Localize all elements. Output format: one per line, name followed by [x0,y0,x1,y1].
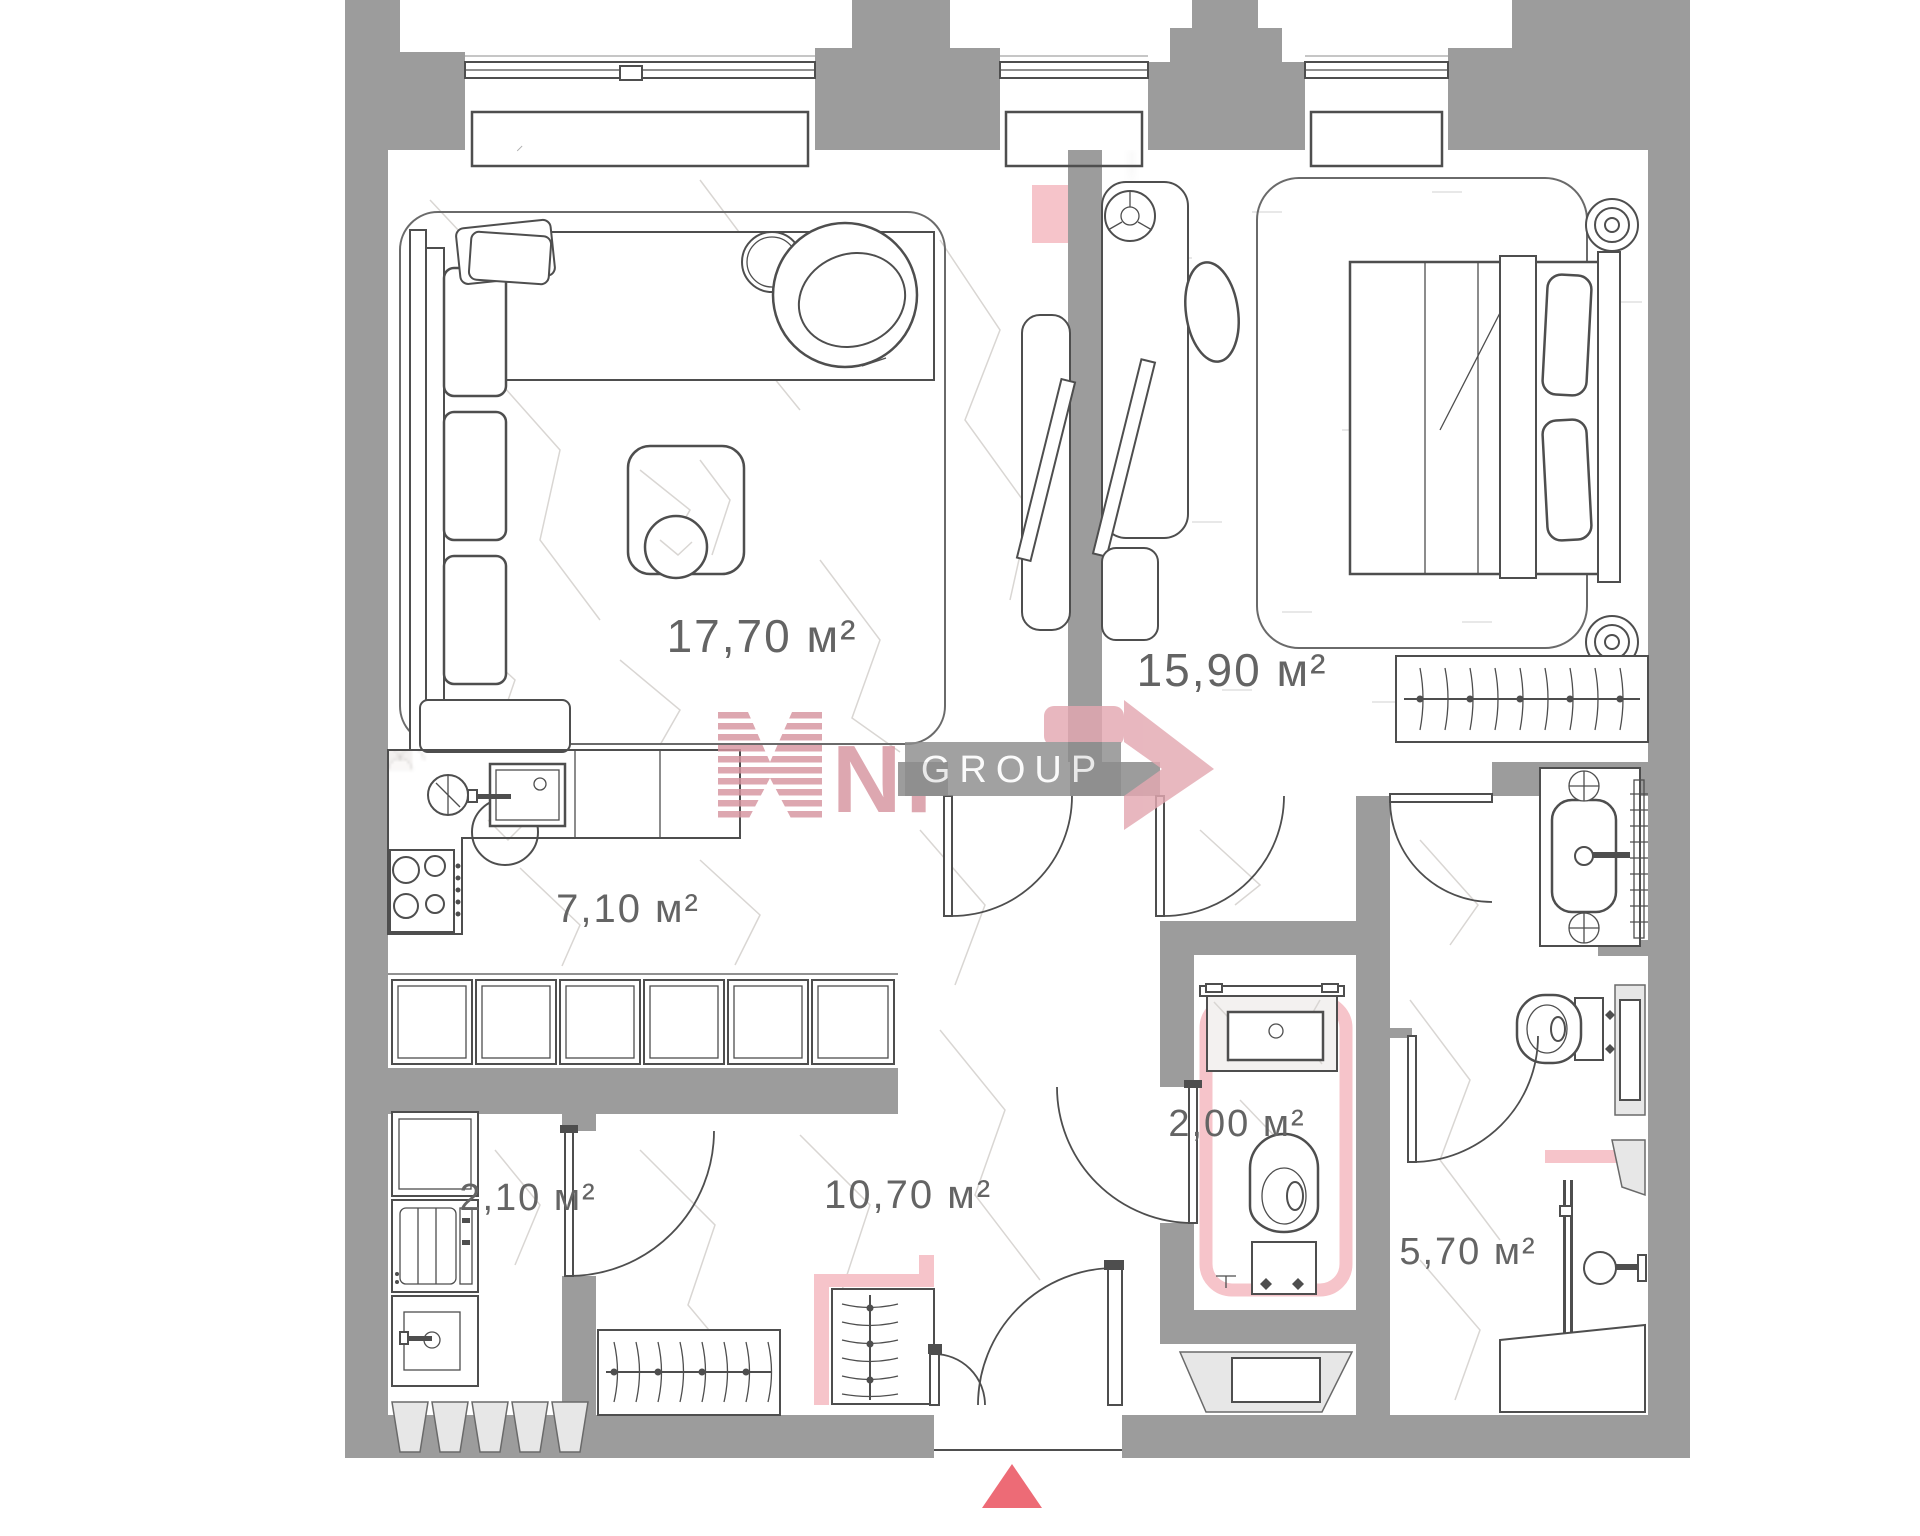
room-label-hallway: 10,70 м² [824,1173,992,1217]
room-label-bedroom: 15,90 м² [1137,644,1328,696]
shower [1560,1180,1646,1345]
window-bedroom-1 [1000,56,1148,166]
door-bath-inner [1408,1036,1538,1162]
window-living [465,56,815,166]
wall-wc-bottom [1160,1310,1390,1344]
faucet [468,790,477,802]
wall-utility-bottom-stub [562,1276,596,1415]
watermark-ribbon [1044,706,1124,746]
room-label-wc: 2,00 м² [1168,1103,1305,1145]
watermark-group: GROUP [921,749,1105,791]
room-label-bathroom: 5,70 м² [1399,1231,1536,1273]
headboard [1598,252,1620,582]
shower-bench [1500,1325,1645,1412]
highlighted-closet [832,1289,934,1404]
bath-vanity [1540,768,1648,946]
shoe-rack [392,1402,588,1452]
wall-wc-left-top [1160,955,1194,1087]
bath-toilet [1517,995,1615,1063]
wall-under-kitchen [388,1068,898,1114]
floorplan-page: 17,70 м² 15,90 м² 7,10 м² 10,70 м² 2,10 … [0,0,1920,1536]
stove [390,850,461,932]
wall-left [345,150,388,1458]
window-bedroom-2 [1305,56,1448,166]
wall-right [1648,150,1690,1458]
sofa-pillow [468,231,551,284]
side-stool [645,516,707,578]
sofa-cushion [444,268,506,396]
door-wc [1057,1080,1202,1223]
bath-tall-cabinet [1612,985,1645,1195]
wall-bottom-left [345,1415,934,1458]
wc-toilet [1216,1134,1318,1294]
hall-closet [598,1330,780,1415]
wc-vanity [1200,984,1344,1071]
room-label-living: 17,70 м² [667,610,858,662]
wall-pillar-d [1448,0,1690,150]
entrance-arrow-icon [982,1464,1042,1508]
door-corridor [1156,796,1284,916]
highlight-wall-niche [1032,185,1070,243]
utility-sink [392,1296,478,1386]
wall-pillar-a [345,0,465,150]
sofa-armrest [420,700,570,752]
door-bathroom [1390,794,1492,902]
pillow [1542,419,1592,541]
door-entrance [928,1260,1124,1450]
bed-runner [1500,256,1536,578]
wall-wc-left-bottom [1160,1223,1194,1310]
sofa-cushion [444,556,506,684]
wall-wc-top [1160,921,1390,955]
room-label-utility: 2,10 м² [459,1177,596,1219]
bedroom-wardrobe [1396,656,1648,742]
sofa-cushion [444,412,506,540]
coffee-table [628,446,744,578]
wall-pillar-b [815,0,1000,150]
wall-pillar-c [1148,0,1305,150]
shower-head-icon [1584,1252,1616,1284]
tv-wall-units [1017,315,1075,630]
bathroom-room [1500,768,1648,1412]
floorplan-svg: 17,70 м² 15,90 м² 7,10 м² 10,70 м² 2,10 … [0,0,1920,1536]
wall-bottom-right [1122,1415,1690,1458]
wall-partition-living-bedroom [1068,150,1102,762]
utility-room [392,1112,478,1386]
tv-console-bedroom [1102,548,1158,640]
wall-stub-lobby [1356,796,1390,921]
kitchen-cabinets [388,974,898,1064]
wall-wc-bath-divider [1356,921,1390,1415]
room-label-kitchen: 7,10 м² [556,887,700,931]
pillow [1542,274,1592,396]
